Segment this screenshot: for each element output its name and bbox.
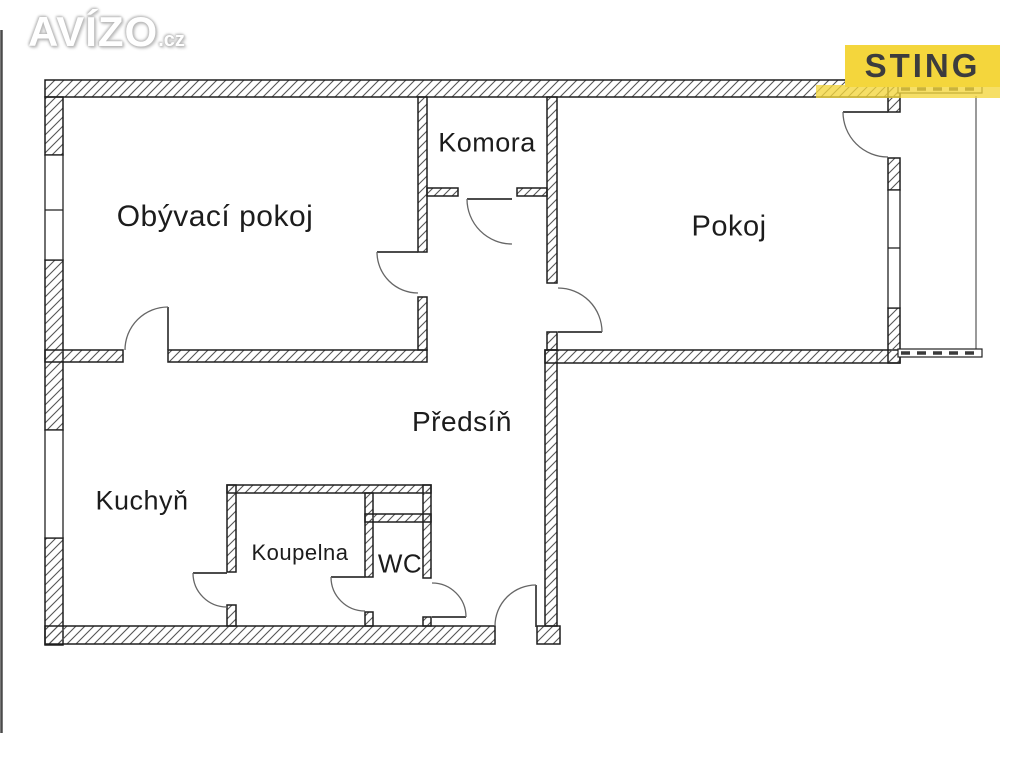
room-label-predsin: Předsíň — [412, 406, 512, 438]
wall-segment — [545, 350, 900, 363]
wall-segment — [545, 350, 557, 626]
wall-segment — [418, 97, 427, 252]
floorplan-image: Obývací pokoj Komora Pokoj Předsíň Kuchy… — [0, 0, 1024, 768]
window — [45, 430, 63, 538]
door-arc — [467, 199, 512, 244]
wall-segment — [547, 97, 557, 283]
wall-segment — [537, 626, 560, 644]
avizo-logo-text: AVÍZO — [28, 8, 158, 55]
wall-segment — [365, 493, 373, 577]
wall-segment — [45, 260, 63, 430]
wall-segment — [365, 612, 373, 626]
room-label-koupelna: Koupelna — [252, 540, 349, 566]
wall-segment — [418, 297, 427, 350]
door-arc — [125, 307, 168, 350]
avizo-logo-suffix: .cz — [158, 29, 185, 51]
wall-segment — [45, 97, 63, 155]
wall-segment — [168, 350, 427, 362]
wall-segment — [45, 350, 123, 362]
wall-segment — [427, 188, 458, 196]
floorplan-drawing — [0, 0, 1024, 768]
door-arc — [432, 583, 466, 617]
wall-segment — [227, 485, 431, 493]
sting-logo: STING — [845, 45, 1000, 87]
wall-segment — [423, 617, 431, 626]
wall-segment — [888, 158, 900, 190]
door-arc — [495, 585, 536, 626]
balcony — [898, 85, 982, 357]
window — [45, 155, 63, 260]
wall-segment — [227, 605, 236, 626]
wall-segment — [423, 485, 431, 578]
door-arcs — [125, 112, 888, 626]
wall-segment — [547, 332, 557, 350]
wall-segment — [45, 80, 900, 97]
avizo-logo: AVÍZO.cz — [28, 8, 185, 56]
room-label-kuchyn: Kuchyň — [95, 486, 188, 517]
room-label-obyvaci-pokoj: Obývací pokoj — [117, 200, 314, 234]
sting-logo-text: STING — [865, 47, 981, 85]
room-label-komora: Komora — [438, 128, 536, 159]
room-label-wc: WC — [378, 549, 422, 580]
room-label-pokoj: Pokoj — [691, 211, 766, 244]
door-arc — [331, 577, 365, 611]
window — [888, 190, 900, 308]
wall-segment — [517, 188, 547, 196]
door-arc — [843, 112, 888, 157]
door-arc — [558, 288, 602, 332]
walls — [45, 80, 900, 645]
wall-segment — [227, 485, 236, 572]
wall-segment — [45, 626, 495, 644]
wall-segment — [365, 514, 431, 522]
door-arc — [377, 252, 418, 293]
door-arc — [193, 573, 227, 607]
